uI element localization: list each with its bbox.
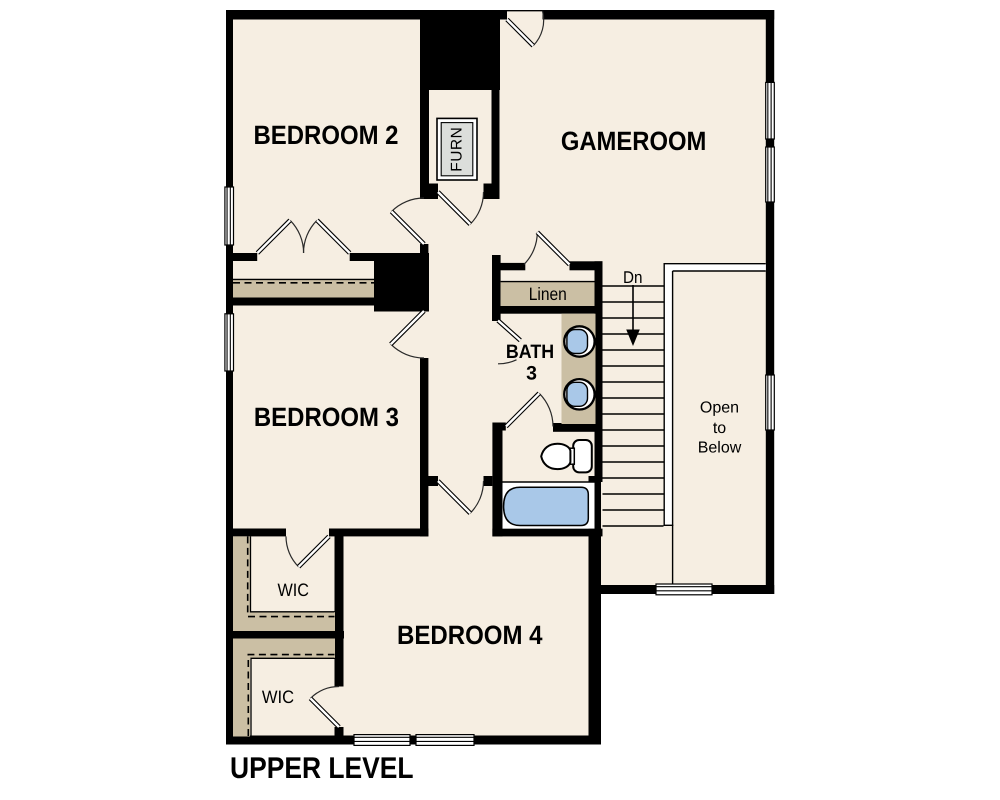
svg-text:FURN: FURN [449, 127, 466, 172]
svg-text:BATH: BATH [506, 341, 554, 363]
svg-text:Below: Below [698, 440, 742, 457]
svg-text:WIC: WIC [262, 687, 294, 707]
svg-text:GAMEROOM: GAMEROOM [561, 126, 707, 156]
svg-text:Linen: Linen [529, 284, 567, 304]
svg-text:WIC: WIC [277, 580, 309, 600]
svg-text:to: to [713, 420, 726, 437]
svg-text:Dn: Dn [623, 268, 643, 287]
svg-text:BEDROOM 4: BEDROOM 4 [397, 620, 543, 650]
svg-text:3: 3 [526, 363, 537, 385]
svg-text:BEDROOM 3: BEDROOM 3 [254, 402, 399, 432]
svg-text:Open: Open [700, 400, 739, 417]
svg-text:BEDROOM 2: BEDROOM 2 [254, 120, 399, 150]
svg-text:UPPER LEVEL: UPPER LEVEL [230, 752, 414, 785]
